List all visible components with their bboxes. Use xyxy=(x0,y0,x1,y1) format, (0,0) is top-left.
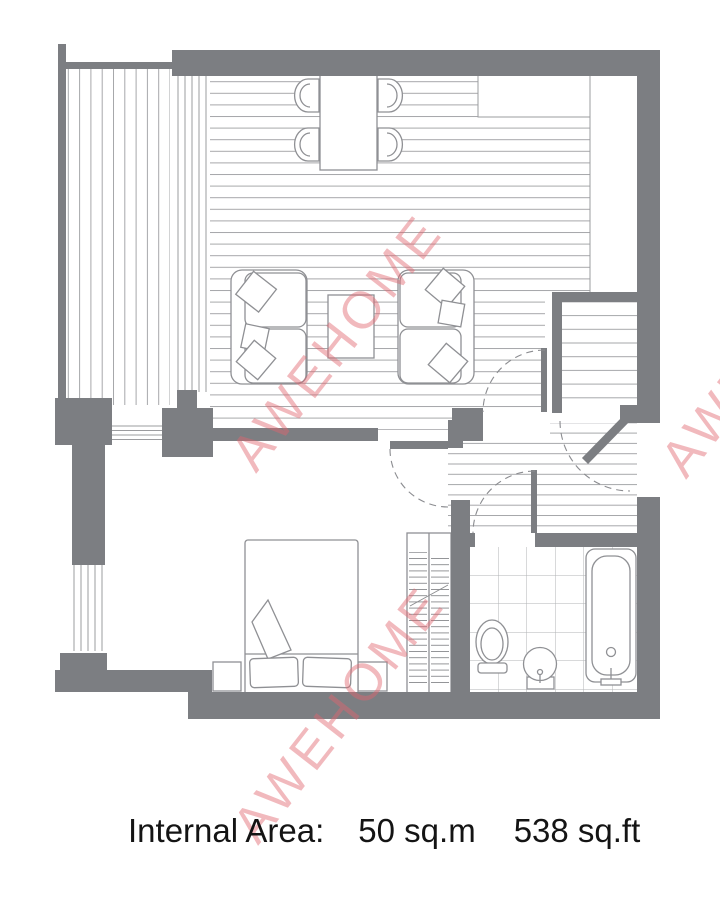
nightstand xyxy=(213,662,241,691)
toilet xyxy=(476,620,508,673)
bathtub xyxy=(586,549,636,685)
internal-area-label: Internal Area: xyxy=(128,812,324,850)
area-imperial-value: 538 sq.ft xyxy=(514,812,641,850)
pillow xyxy=(236,340,275,379)
sofa-right xyxy=(398,268,474,384)
wardrobe xyxy=(407,533,451,695)
balcony-floor xyxy=(66,69,170,405)
living-room-door xyxy=(483,348,547,412)
pillow xyxy=(438,300,465,327)
pillow xyxy=(250,657,299,688)
hallway-floor xyxy=(448,423,637,533)
pillow xyxy=(236,271,277,312)
living-dining-floor xyxy=(210,76,590,430)
dining-chair xyxy=(378,128,402,161)
window-mullions xyxy=(177,76,206,412)
kitchen-counter xyxy=(478,76,637,292)
entry-door xyxy=(560,417,630,491)
pillow xyxy=(425,268,464,307)
bathroom-door xyxy=(473,470,537,533)
walls xyxy=(55,44,660,719)
dining-chair xyxy=(295,79,319,112)
sink xyxy=(524,648,557,690)
balcony-window xyxy=(105,426,162,440)
closet xyxy=(545,292,637,423)
blanket xyxy=(252,600,291,659)
watermark-text: AWEHOME xyxy=(650,209,720,487)
pillow xyxy=(302,657,351,688)
bedroom-door xyxy=(390,441,448,507)
pillow xyxy=(428,343,467,382)
floor-plan-page: AWEHOME AWEHOME AWEHOME Internal Area: 5… xyxy=(0,0,720,900)
sofa-left xyxy=(231,270,307,384)
watermark-text: AWEHOME xyxy=(220,203,455,481)
dining-table xyxy=(295,70,403,170)
area-metric-value: 50 sq.m xyxy=(358,812,475,850)
dining-chair xyxy=(295,128,319,161)
bathroom-floor xyxy=(470,547,637,692)
dining-chair xyxy=(378,79,402,112)
pillow xyxy=(241,324,269,352)
bedroom-window xyxy=(74,565,102,651)
bed xyxy=(245,540,358,695)
internal-area-caption: Internal Area: 50 sq.m 538 sq.ft xyxy=(128,812,640,850)
floor-plan: AWEHOME AWEHOME AWEHOME xyxy=(0,0,720,900)
coffee-table xyxy=(328,295,374,358)
nightstand xyxy=(358,662,387,691)
